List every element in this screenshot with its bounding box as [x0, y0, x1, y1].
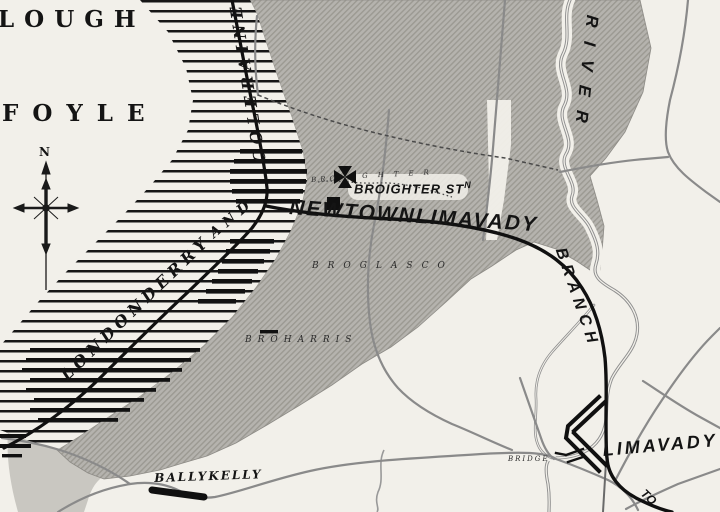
label-townland-broighter-left: BRO [311, 176, 339, 184]
label-bridge: BRIDGE [508, 456, 550, 463]
map-graphic [0, 0, 720, 512]
label-ballykelly: BALLYKELLY [154, 468, 263, 484]
label-townland-broharris: BROHARRIS [245, 336, 357, 345]
label-broighter-station: BROIGHTER STN [354, 181, 472, 195]
compass-north-label: N [39, 146, 50, 158]
label-townland-broglasco: BROGLASCO [312, 262, 454, 271]
broighter-station-sup: N [464, 180, 472, 190]
label-lough-foyle-1: LOUGH [0, 8, 146, 31]
label-lough-foyle-2: FOYLE [2, 102, 159, 125]
broighter-station-text: BROIGHTER ST [354, 181, 464, 196]
map-canvas: LOUGH FOYLE N LONDONDERRY AND COLERAINE … [0, 0, 720, 512]
